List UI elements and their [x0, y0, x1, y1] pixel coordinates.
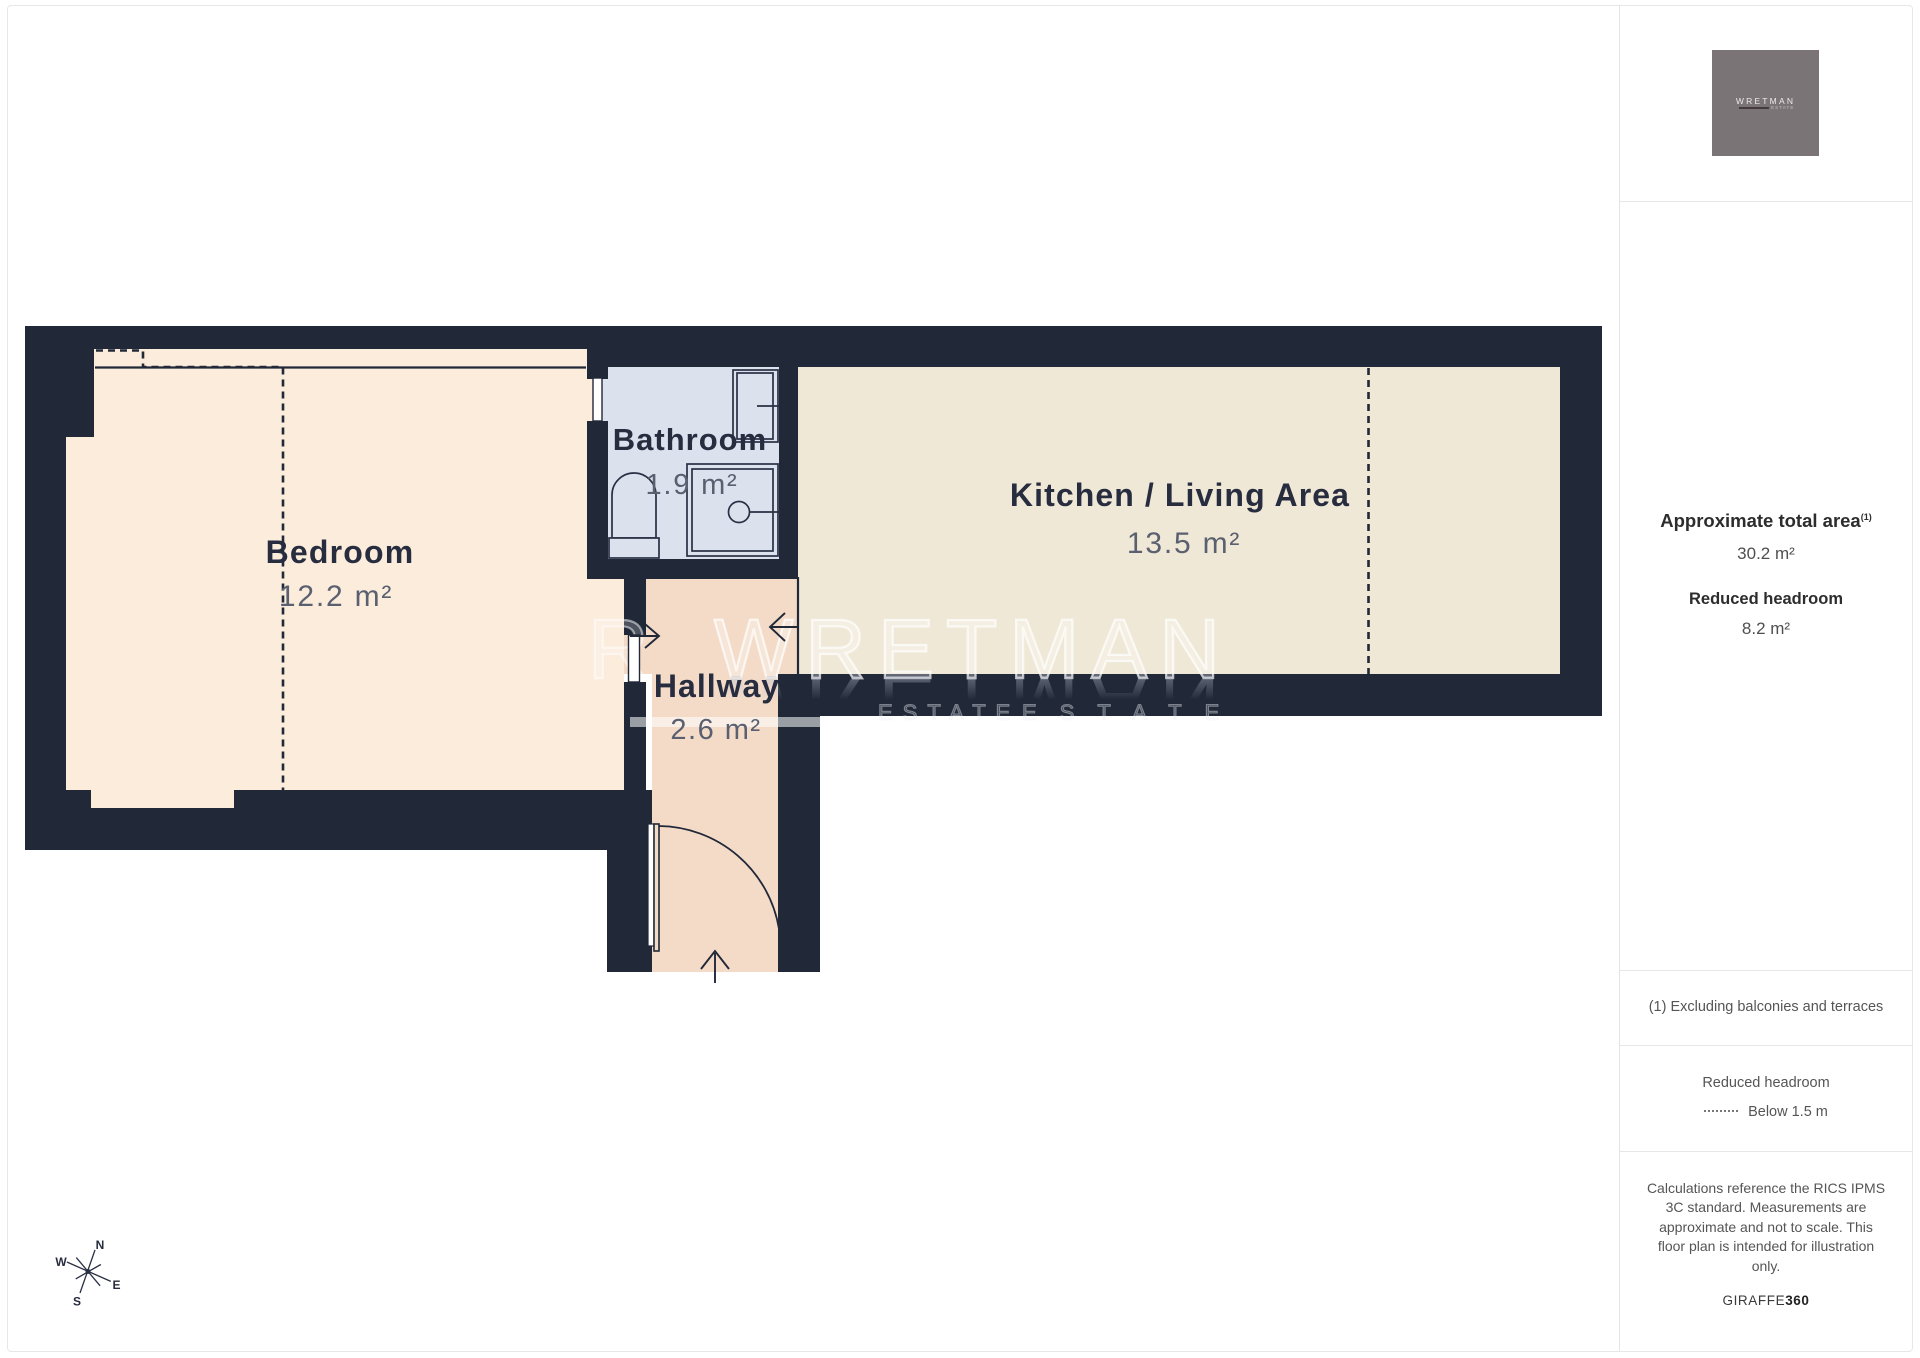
- svg-text:2.6 m²: 2.6 m²: [670, 714, 761, 746]
- svg-text:12.2 m²: 12.2 m²: [279, 580, 393, 613]
- svg-text:Hallway: Hallway: [654, 668, 780, 704]
- svg-text:S: S: [73, 1295, 81, 1309]
- svg-text:W: W: [55, 1255, 67, 1269]
- svg-text:13.5 m²: 13.5 m²: [1127, 527, 1241, 560]
- svg-text:E: E: [112, 1278, 120, 1292]
- svg-text:Bedroom: Bedroom: [266, 534, 415, 570]
- svg-text:N: N: [96, 1238, 105, 1252]
- svg-text:R: R: [588, 602, 661, 696]
- svg-text:1.9 m²: 1.9 m²: [646, 469, 739, 501]
- svg-text:ESTATE: ESTATE: [878, 700, 1020, 725]
- svg-text:Kitchen / Living Area: Kitchen / Living Area: [1010, 477, 1350, 513]
- svg-text:Bathroom: Bathroom: [613, 422, 767, 457]
- svg-text:ESTATE: ESTATE: [1022, 700, 1242, 725]
